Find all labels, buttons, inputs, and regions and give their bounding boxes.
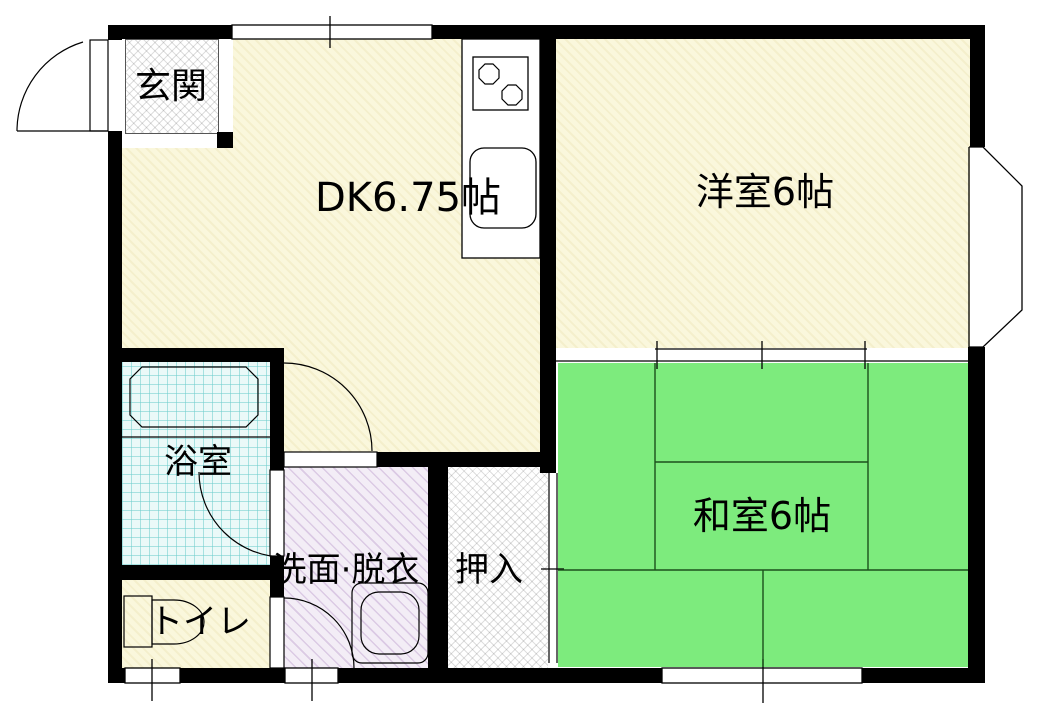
room-label-bath: 浴室 xyxy=(164,445,232,479)
wall-bath-right-upper xyxy=(270,348,284,470)
wall-right-top xyxy=(970,25,985,147)
wall-top-left xyxy=(108,25,232,39)
room-label-western: 洋室6帖 xyxy=(696,173,834,211)
room-label-japanese: 和室6帖 xyxy=(693,497,831,535)
wall-right-bottom xyxy=(968,347,985,683)
room-label-genkan: 玄関 xyxy=(135,69,207,105)
wall-bath-top xyxy=(122,348,284,362)
floor-plan: 玄関 DK6.75帖 洋室6帖 和室6帖 浴室 トイレ 洗面·脱衣 押入 xyxy=(0,0,1038,714)
room-label-washroom: 洗面·脱衣 xyxy=(273,553,420,587)
wall-entrance-corner xyxy=(217,132,233,148)
room-label-dk: DK6.75帖 xyxy=(315,178,501,218)
wall-left xyxy=(108,131,122,683)
wall-dk-divider xyxy=(540,25,556,473)
entrance-door xyxy=(17,40,108,131)
wall-top-right xyxy=(432,25,985,39)
room-label-closet: 押入 xyxy=(455,553,523,587)
wall-washroom-top xyxy=(377,452,540,467)
wall-washroom-closet xyxy=(428,467,448,668)
wall-bottom-2 xyxy=(180,668,285,683)
wall-bottom-4 xyxy=(862,668,985,683)
wall-left-corner xyxy=(108,25,122,40)
room-label-toilet: トイレ xyxy=(149,605,251,639)
wall-bath-toilet xyxy=(122,565,270,580)
wall-bottom-1 xyxy=(108,668,125,683)
wall-bottom-3 xyxy=(338,668,662,683)
bay-window xyxy=(969,147,1022,347)
